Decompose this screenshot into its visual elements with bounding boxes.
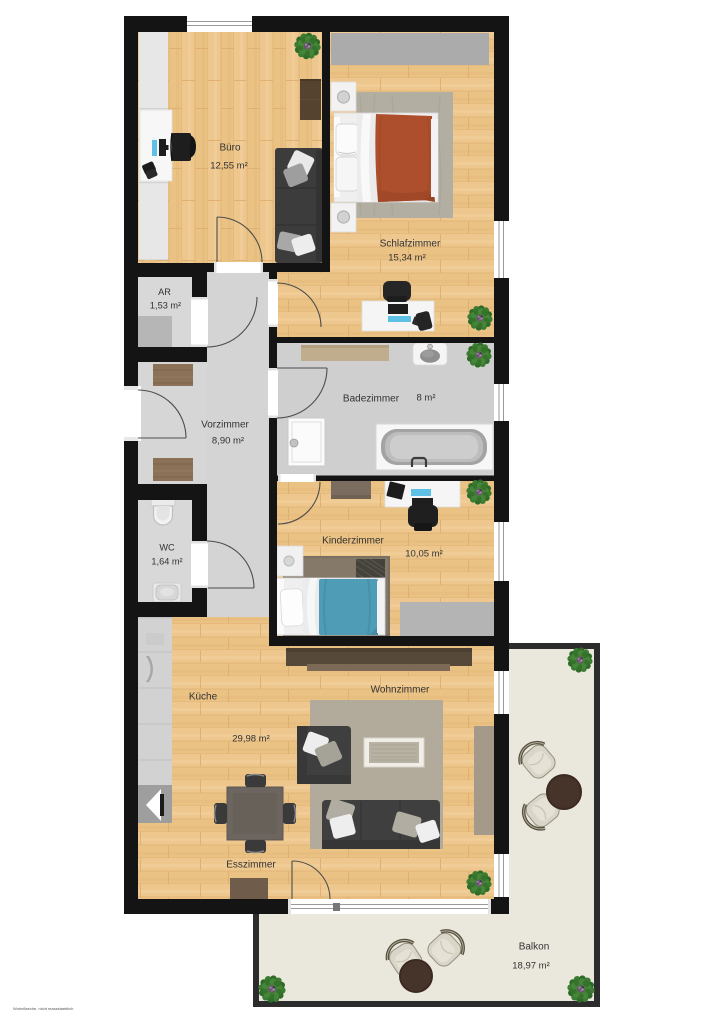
svg-text:Büro: Büro [219,143,241,154]
svg-text:Badezimmer: Badezimmer [343,394,400,405]
svg-text:12,55 m²: 12,55 m² [210,161,248,172]
svg-text:29,98 m²: 29,98 m² [232,734,270,745]
svg-text:1,64 m²: 1,64 m² [151,557,182,567]
svg-text:Kinderzimmer: Kinderzimmer [322,536,384,547]
svg-text:8,90 m²: 8,90 m² [212,436,244,447]
svg-text:Wohnzimmer: Wohnzimmer [371,685,430,696]
svg-text:8 m²: 8 m² [417,393,436,404]
svg-text:10,05 m²: 10,05 m² [405,549,443,560]
svg-text:Esszimmer: Esszimmer [226,860,276,871]
svg-text:18,97 m²: 18,97 m² [512,961,550,972]
svg-text:1,53 m²: 1,53 m² [150,301,181,311]
svg-text:Küche: Küche [189,692,218,703]
svg-text:Balkon: Balkon [519,942,550,953]
svg-text:Vorzimmer: Vorzimmer [201,420,249,431]
svg-text:Schlafzimmer: Schlafzimmer [380,239,441,250]
svg-text:15,34 m²: 15,34 m² [388,253,426,264]
svg-text:Wohnflaeche, nicht massstaebli: Wohnflaeche, nicht massstaeblich [13,1006,73,1011]
svg-text:WC: WC [159,543,175,553]
svg-text:AR: AR [158,287,171,297]
